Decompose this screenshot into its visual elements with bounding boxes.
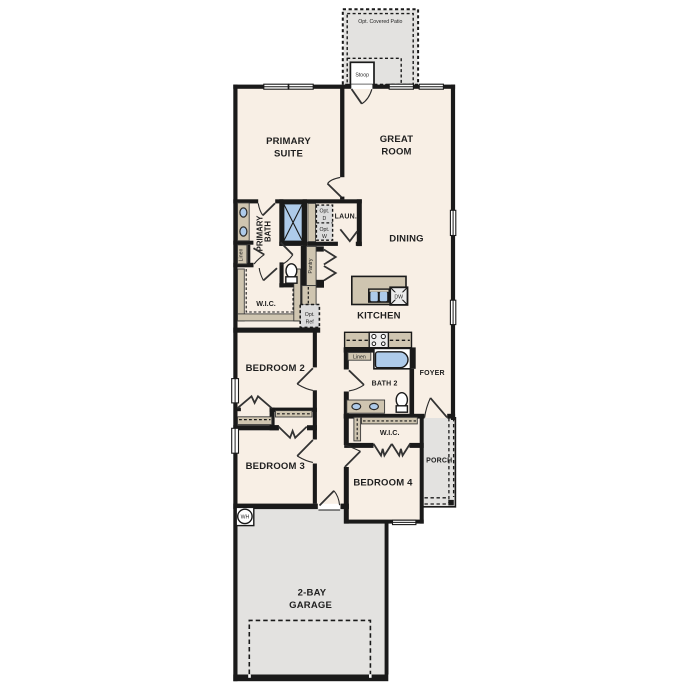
svg-text:Opt. Covered Patio: Opt. Covered Patio	[358, 19, 402, 25]
svg-text:D: D	[323, 216, 327, 222]
svg-text:Opt.: Opt.	[319, 227, 329, 233]
svg-text:BATH: BATH	[263, 221, 272, 242]
svg-text:DINING: DINING	[389, 234, 423, 245]
svg-text:ROOM: ROOM	[381, 146, 411, 157]
svg-text:BEDROOM 3: BEDROOM 3	[246, 461, 305, 472]
svg-text:Stoop: Stoop	[355, 72, 369, 78]
svg-text:Opt.: Opt.	[319, 209, 329, 215]
svg-text:SUITE: SUITE	[274, 148, 303, 159]
svg-text:2-BAY: 2-BAY	[298, 588, 327, 599]
svg-text:Linen: Linen	[239, 249, 245, 262]
svg-text:Ref: Ref	[306, 320, 315, 326]
svg-text:GREAT: GREAT	[380, 134, 414, 145]
svg-text:Opt.: Opt.	[305, 312, 315, 318]
svg-text:PRIMARY: PRIMARY	[266, 136, 311, 147]
svg-text:BEDROOM 2: BEDROOM 2	[246, 363, 305, 374]
svg-text:W.I.C.: W.I.C.	[380, 428, 400, 437]
svg-text:PORCH: PORCH	[426, 458, 452, 465]
svg-text:W.I.C.: W.I.C.	[256, 299, 276, 308]
svg-text:DW: DW	[394, 295, 403, 301]
svg-text:WH: WH	[241, 514, 250, 520]
svg-text:GARAGE: GARAGE	[289, 600, 332, 611]
svg-text:W: W	[322, 234, 327, 240]
svg-text:Pantry: Pantry	[308, 258, 314, 273]
svg-text:LAUN.: LAUN.	[335, 214, 357, 221]
svg-text:BATH 2: BATH 2	[372, 381, 398, 388]
svg-text:BEDROOM 4: BEDROOM 4	[353, 477, 413, 488]
svg-text:Linen: Linen	[353, 354, 366, 360]
svg-text:KITCHEN: KITCHEN	[357, 311, 401, 322]
svg-text:FOYER: FOYER	[420, 370, 445, 377]
